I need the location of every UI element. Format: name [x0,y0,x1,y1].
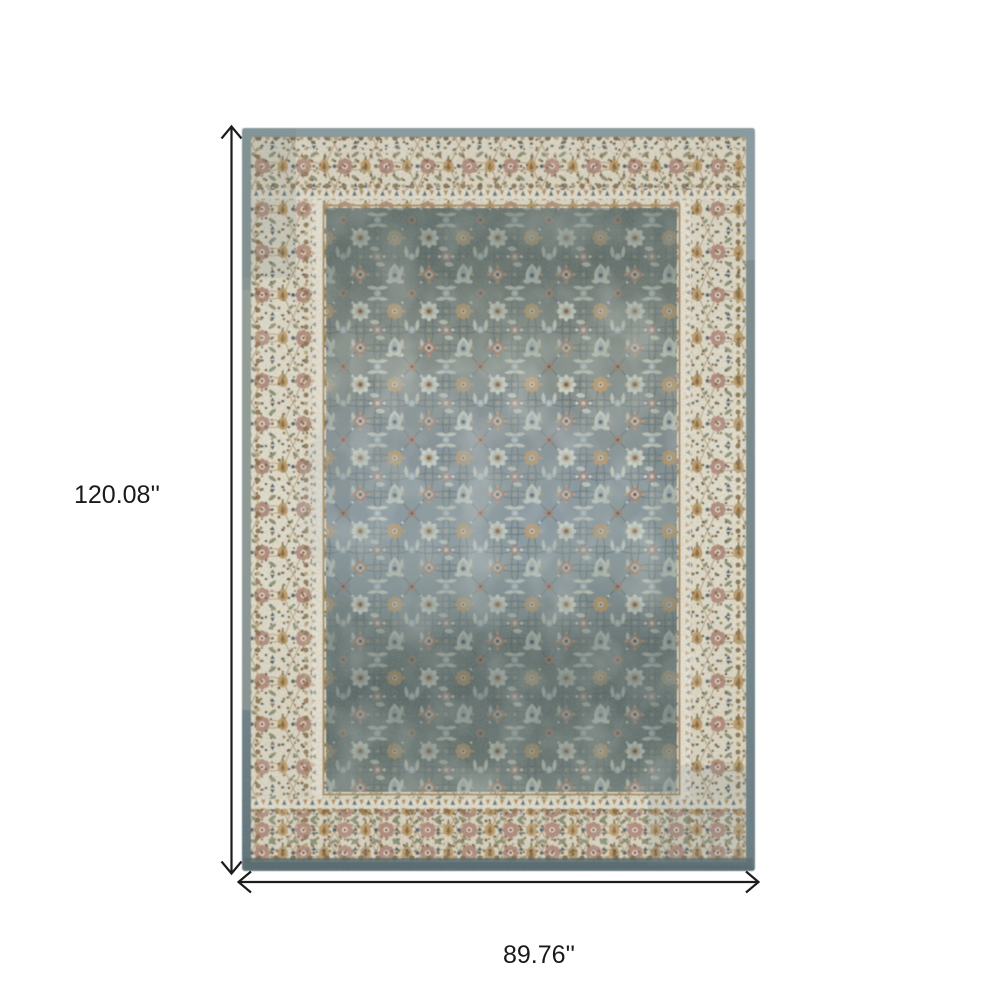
svg-text:120.08'': 120.08'' [74,481,160,509]
svg-text:89.76'': 89.76'' [503,941,575,969]
